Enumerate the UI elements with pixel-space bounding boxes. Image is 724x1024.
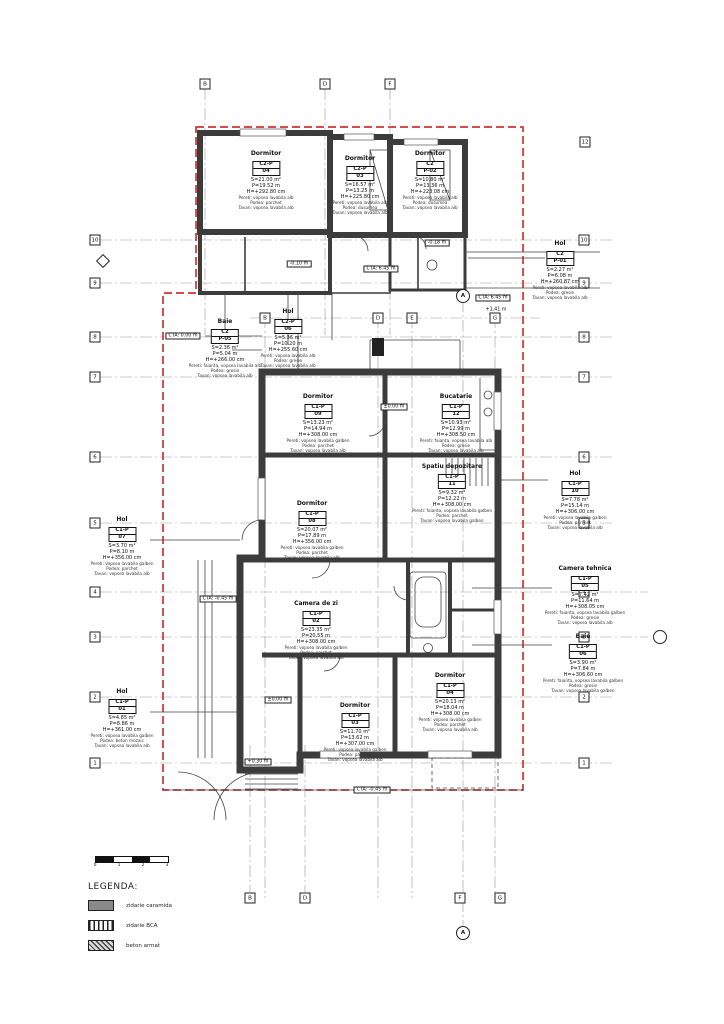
legend-item-label: zidarie caramida [126,903,172,909]
room-code-box: C1-P02 [302,611,330,625]
grid-bubble-g: G [495,893,506,904]
grid-bubble-d: D [320,79,331,90]
room-code-box: C2-P04 [252,161,280,175]
room-label-hol-06: HolC2-P06S=5.36 m²P=10.20 mH=+255.60 cmP… [260,308,315,368]
grid-bubble-12: 12 [580,137,591,148]
room-name: Hol [91,688,154,695]
room-number: 03 [347,174,373,180]
grid-bubble-d: D [300,893,311,904]
room-label-dormitor-04: DormitorC2-P04S=21.00 m²P=19.52 mH=+292.… [238,150,293,210]
room-name: Hol [544,470,607,477]
legend-title: LEGENDA: [88,882,172,892]
room-name: Dormitor [332,155,387,162]
grid-bubble-8: 8 [90,332,101,343]
room-name: Hol [91,516,154,523]
room-code-box: C1-P10 [561,481,589,495]
scale-tick: 3 [166,863,169,868]
level-label: ±0.00 m [265,697,292,704]
legend-swatch-solid [88,900,114,911]
room-name: Dormitor [281,500,344,507]
floor-plan-sheet: LEGENDA: zidarie caramidazidarie BCAbeto… [0,0,724,1024]
plan-linework [0,0,724,1024]
room-name: Baie [189,318,261,325]
room-number: 12 [443,412,469,418]
grid-bubble-b: B [200,79,211,90]
room-number: 07 [109,535,135,541]
room-finish-ceiling: Tavan: vopsea lavabila alb [532,295,587,300]
room-number: 08 [299,519,325,525]
room-code-box: C2P-05 [211,329,239,343]
grid-bubble-8: 8 [579,332,590,343]
room-finish-ceiling: Tavan: vopsea lavabila alb [238,205,293,210]
room-finish-ceiling: Tavan: vopsea lavabila alb [332,210,387,215]
room-label-dormitor-P-02: DormitorC2P-02S=10.80 m²P=13.36 mH=+223.… [402,150,457,210]
room-finish-ceiling: Tavan: vopsea lavabila galben [543,688,623,693]
room-name: Dormitor [238,150,293,157]
level-label: +1.41 m [484,308,509,313]
room-label-dormitor-03: DormitorC2-P03S=16.57 m²P=13.25 mH=+225.… [332,155,387,215]
room-finish-ceiling: Tavan: vopsea lavabila alb [189,373,261,378]
room-name: Spatiu depozitare [412,463,492,470]
room-name: Dormitor [287,393,350,400]
level-label: +0.30 m [245,759,272,766]
scale-bar: 0123 [95,856,171,870]
room-finish-ceiling: Tavan: vopsea lavabila alb [419,727,482,732]
grid-bubble-3: 3 [90,632,101,643]
grid-bubble-6: 6 [90,452,101,463]
grid-bubble-g: G [490,313,501,324]
room-number: 02 [303,619,329,625]
room-number: 03 [342,721,368,727]
room-label-baie-06: BaieC1-P06S=3.90 m²P=7.84 mH=+306.60 cmP… [543,633,623,693]
grid-bubble-f: F [455,893,466,904]
grid-bubble-e: E [407,313,418,324]
room-code-box: C2P-02 [416,161,444,175]
section-marker-a: A [456,926,470,940]
level-label: ±0.00 m [381,404,408,411]
room-number: 06 [275,327,301,333]
room-label-hol-07: HolC1-P07S=3.70 m²P=8.10 mH=+356.00 cmPe… [91,516,154,576]
grid-bubble-9: 9 [90,278,101,289]
grid-bubble-4: 4 [90,587,101,598]
scale-bar-ticks: 0123 [95,863,171,870]
room-code-box: C1-P01 [108,699,136,713]
room-name: Camera tehnica [545,565,625,572]
room-code-box: C1-P04 [436,683,464,697]
room-label-dormitor-03: DormitorC1-P03S=11.70 m²P=13.62 mH=+307.… [324,702,387,762]
axis-circle-marker [653,630,667,644]
legend: LEGENDA: zidarie caramidazidarie BCAbeto… [88,882,172,960]
level-label: CTA: -0.45 m [354,787,391,794]
room-name: Dormitor [324,702,387,709]
room-code-box: C1-P06 [569,644,597,658]
room-finish-ceiling: Tavan: vopsea lavabila alb [324,757,387,762]
room-label-dormitor-08: DormitorC1-P08S=20.07 m²P=17.89 mH=+356.… [281,500,344,560]
legend-item-label: beton armat [126,943,160,949]
room-finish-ceiling: Tavan: vopsea lavabila alb [91,571,154,576]
room-code-box: C1-P08 [298,511,326,525]
level-label: CTA: 0.00 m [165,333,200,340]
room-code-box: C2P-01 [546,251,574,265]
room-finish-ceiling: Tavan: vopsea lavabila alb [544,525,607,530]
room-finish-ceiling: Tavan: vopsea lavabila alb [285,655,348,660]
room-label-bucatarie-12: BucatarieC1-P12S=10.93 m²P=12.99 mH=+308… [420,393,492,453]
room-number: 05 [572,584,598,590]
room-code-box: C1-P09 [304,404,332,418]
level-label: CTA: 6.45 m [363,266,398,273]
room-label-hol-10: HolC1-P10S=7.78 m²P=15.14 mH=+306.00 cmP… [544,470,607,530]
level-label: CTA: 6.45 m [475,295,510,302]
grid-bubble-1: 1 [90,758,101,769]
room-code-box: C2-P06 [274,319,302,333]
room-number: 10 [562,489,588,495]
grid-bubble-f: F [385,79,396,90]
room-number: 09 [305,412,331,418]
room-label-camera-de-zi-02: Camera de ziC1-P02S=23.35 m²P=20.55 mH=+… [285,600,348,660]
room-number: 01 [109,707,135,713]
grid-bubble-6: 6 [579,452,590,463]
grid-bubble-b: B [245,893,256,904]
room-code-box: C1-P12 [442,404,470,418]
legend-swatch-hatch [88,940,114,951]
legend-item-beton-armat: beton armat [88,940,172,951]
vestibule-lines [298,293,460,372]
room-number: 04 [437,691,463,697]
room-finish-ceiling: Tavan: vopsea lavabila alb [260,363,315,368]
room-code-box: C2-P03 [346,166,374,180]
grid-bubble-7: 7 [579,372,590,383]
scale-tick: 2 [142,863,145,868]
room-number: P-02 [417,169,443,175]
room-finish-ceiling: Tavan: vopsea lavabila alb [287,448,350,453]
room-finish-ceiling: Tavan: vopsea lavabila alb [91,743,154,748]
legend-swatch-vlines [88,920,114,931]
legend-item-label: zidarie BCA [126,923,157,929]
room-name: Hol [532,240,587,247]
room-name: Camera de zi [285,600,348,607]
grid-bubble-1: 1 [579,758,590,769]
room-number: 11 [439,482,465,488]
grid-bubble-7: 7 [90,372,101,383]
grid-bubble-10: 10 [90,235,101,246]
room-name: Hol [260,308,315,315]
room-finish-ceiling: Tavan: vopsea lavabila alb [281,555,344,560]
room-number: P-01 [547,259,573,265]
room-finish-ceiling: Tavan: vopsea lavabila alb [545,620,625,625]
room-label-spatiu-depozitare-11: Spatiu depozitareC1-P11S=9.32 m²P=12.22 … [412,463,492,523]
room-label-dormitor-04: DormitorC1-P04S=20.13 m²P=18.04 mH=+308.… [419,672,482,732]
room-finish-ceiling: Tavan: vopsea lavabila alb [402,205,457,210]
room-code-box: C1-P07 [108,527,136,541]
room-number: 06 [570,652,596,658]
grid-bubble-2: 2 [579,692,590,703]
section-marker-a: A [456,289,470,303]
room-label-dormitor-09: DormitorC1-P09S=13.23 m²P=14.94 mH=+308.… [287,393,350,453]
scale-bar-blocks [95,856,169,863]
scale-tick: 0 [94,863,97,868]
room-label-camera-tehnica-05: Camera tehnicaC1-P05S=7.42 m²P=11.64 mH=… [545,565,625,625]
room-name: Bucatarie [420,393,492,400]
room-number: P-05 [212,337,238,343]
room-label-hol-P-01: HolC2P-01S=2.27 m²P=6.08 mH=+260.87 cmPe… [532,240,587,300]
scale-tick: 1 [118,863,121,868]
room-code-box: C1-P11 [438,474,466,488]
room-name: Dormitor [402,150,457,157]
level-label: CTA: -0.45 m [200,596,237,603]
room-finish-ceiling: Tavan: vopsea lavabila alb [420,448,492,453]
room-code-box: C1-P03 [341,713,369,727]
legend-item-zidarie-BCA: zidarie BCA [88,920,172,931]
room-name: Baie [543,633,623,640]
room-label-baie-P-05: BaieC2P-05S=2.36 m²P=5.04 mH=+266.00 cmP… [189,318,261,378]
level-label: -0.10 m [287,261,312,268]
room-finish-ceiling: Tavan: vopsea lavabila galben [412,518,492,523]
room-name: Dormitor [419,672,482,679]
level-label: -0.18 m [425,240,450,247]
room-code-box: C1-P05 [571,576,599,590]
room-number: 04 [253,169,279,175]
room-label-hol-01: HolC1-P01S=4.85 m²P=8.86 mH=+361.00 cmPe… [91,688,154,748]
legend-item-zidarie-caramida: zidarie caramida [88,900,172,911]
grid-bubble-d: D [373,313,384,324]
